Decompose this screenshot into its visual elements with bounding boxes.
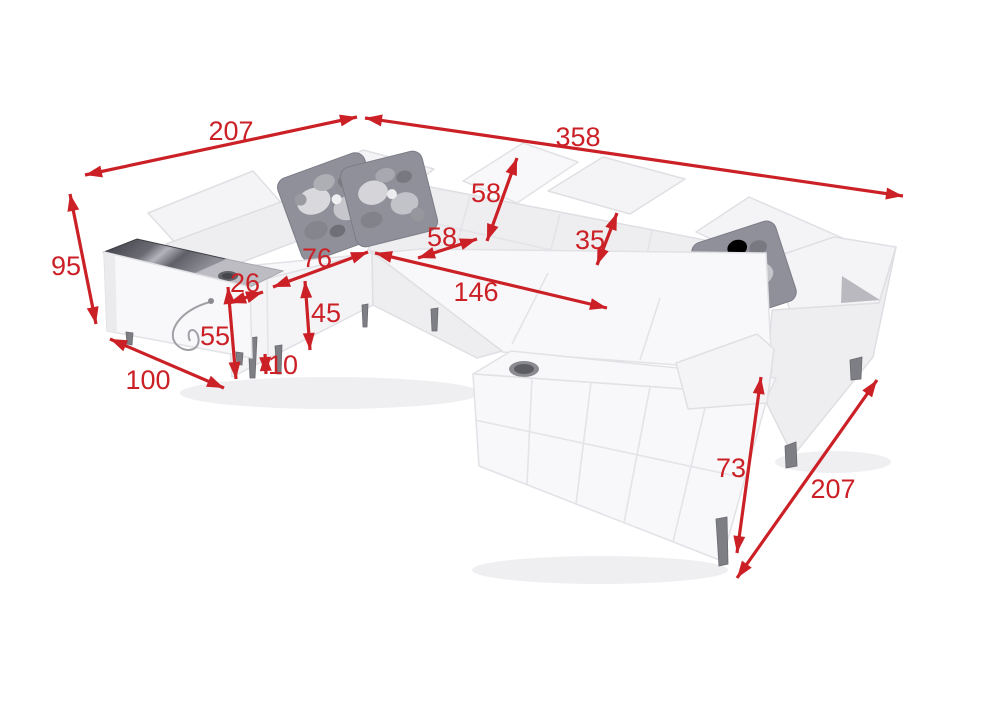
left-front-seam (267, 279, 268, 357)
dimension-label-armrest-top-width: 26 (230, 268, 260, 298)
right-arm-front-leg (785, 442, 797, 468)
corner-leg (362, 304, 368, 327)
dimension-label-overall-height: 95 (51, 251, 81, 281)
middle-leg (431, 308, 438, 331)
sofa-dimension-diagram: 20735895100265510764558583514673207 (0, 0, 1000, 707)
floor-shadow-left (180, 377, 480, 409)
chaise-cup-holder-hole (514, 364, 534, 374)
dimension-label-armrest-height: 55 (200, 321, 230, 351)
dimension-label-seat-depth-back: 58 (427, 222, 457, 252)
dimension-label-left-end-depth: 100 (125, 365, 170, 395)
right-arm-leg (850, 357, 862, 380)
dimension-label-sleeping-area-width: 146 (453, 277, 498, 307)
dimension-label-left-section-length: 207 (208, 116, 253, 146)
table-leg-1 (126, 332, 133, 345)
dimension-label-chaise-height: 73 (716, 453, 746, 483)
dimension-label-leg-height: 10 (268, 350, 298, 380)
table-leg-2 (236, 352, 243, 365)
cable-plug (208, 298, 214, 304)
dimension-label-seat-depth-left: 76 (302, 243, 332, 273)
dimension-label-seat-height: 45 (311, 298, 341, 328)
dimension-label-headrest-height: 35 (575, 225, 605, 255)
diagram-canvas: 20735895100265510764558583514673207 (0, 0, 1000, 707)
dimension-label-backrest-height: 58 (471, 178, 501, 208)
dimension-label-right-section-depth: 207 (810, 474, 855, 504)
dimension-label-back-section-length: 358 (555, 122, 600, 152)
dimension-line-leg-height (265, 354, 266, 374)
floor-shadow-chaise (472, 556, 728, 584)
